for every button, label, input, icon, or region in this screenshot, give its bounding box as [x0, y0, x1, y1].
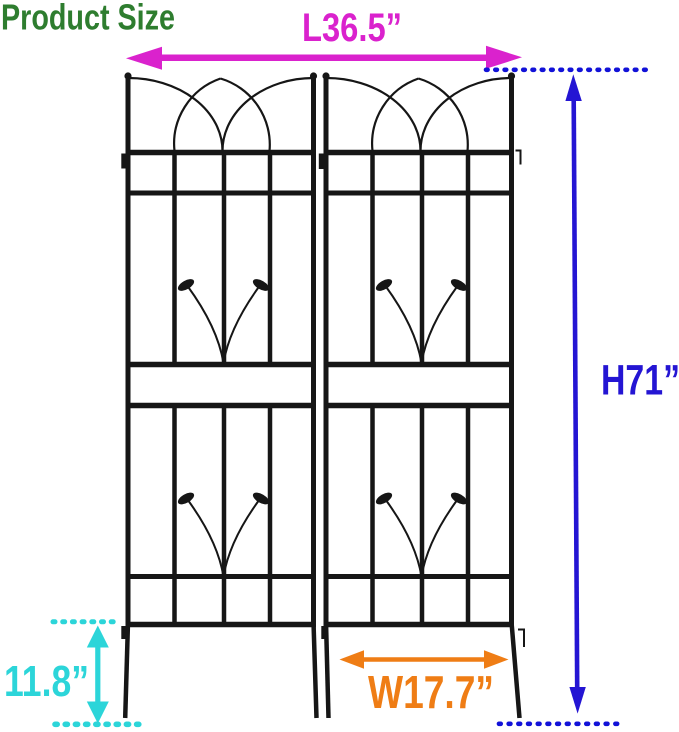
svg-text:Product Size: Product Size — [1, 0, 175, 38]
svg-text:11.8”: 11.8” — [4, 657, 89, 706]
svg-text:H71”: H71” — [601, 357, 679, 405]
svg-text:L36.5”: L36.5” — [302, 6, 402, 50]
svg-text:W17.7”: W17.7” — [368, 666, 494, 718]
